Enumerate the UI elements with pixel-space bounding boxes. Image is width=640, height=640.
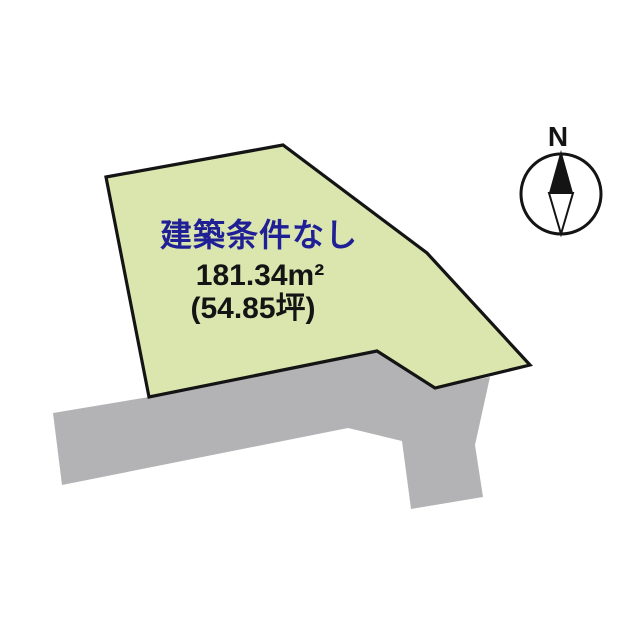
parcel-condition-label: 建築条件なし (160, 219, 358, 251)
compass (521, 150, 601, 234)
compass-north-label: N (548, 123, 568, 151)
site-plan-svg (0, 0, 640, 640)
site-plan: 建築条件なし 181.34m² (54.85坪) N (0, 0, 640, 640)
parcel-area-tsubo: (54.85坪) (190, 294, 315, 324)
parcel-area-sqm: 181.34m² (196, 261, 324, 291)
